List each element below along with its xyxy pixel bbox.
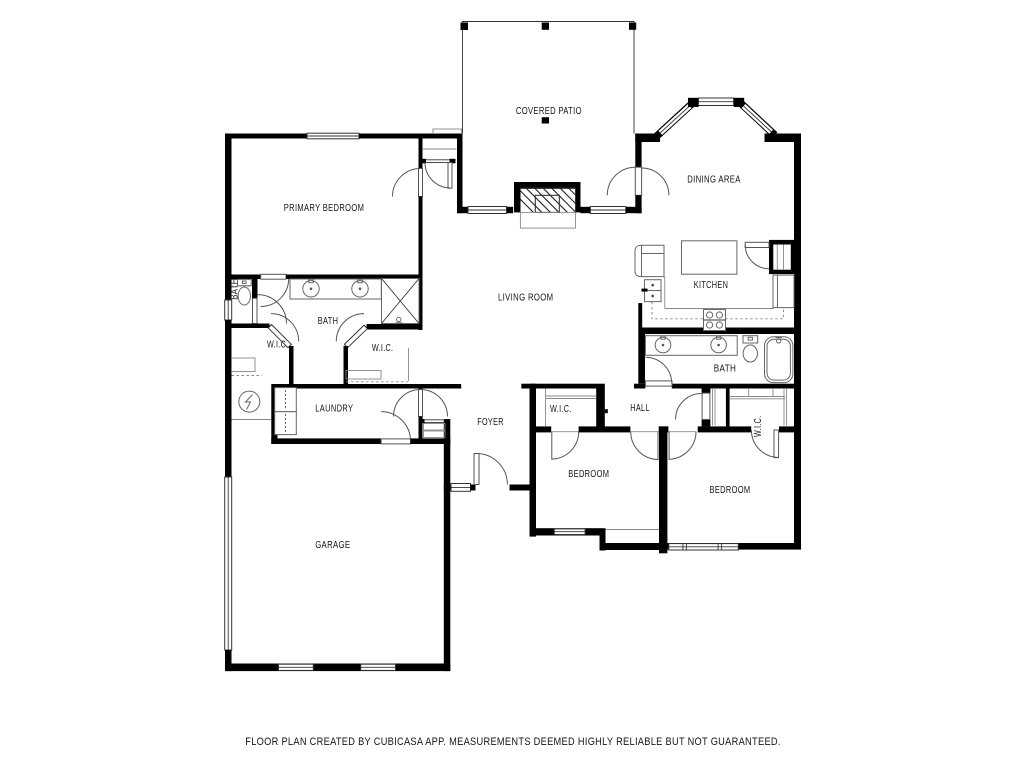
- svg-text:BEDROOM: BEDROOM: [710, 485, 751, 496]
- svg-text:W.I.C.: W.I.C.: [267, 340, 289, 351]
- svg-text:COVERED PATIO: COVERED PATIO: [516, 106, 582, 117]
- svg-text:HALL: HALL: [630, 403, 650, 414]
- svg-text:DINING AREA: DINING AREA: [687, 175, 741, 186]
- svg-text:W.I.C.: W.I.C.: [372, 343, 394, 354]
- svg-text:BATH: BATH: [714, 364, 737, 375]
- svg-text:KITCHEN: KITCHEN: [694, 280, 729, 291]
- svg-text:PRIMARY BEDROOM: PRIMARY BEDROOM: [284, 203, 365, 214]
- svg-text:W.I.C.: W.I.C.: [550, 404, 572, 415]
- svg-text:BATH: BATH: [318, 316, 339, 327]
- svg-text:FOYER: FOYER: [477, 417, 504, 428]
- svg-text:BEDROOM: BEDROOM: [568, 469, 609, 480]
- svg-text:GARAGE: GARAGE: [315, 540, 350, 551]
- svg-text:W.I.C.: W.I.C.: [753, 416, 764, 438]
- svg-text:LIVING ROOM: LIVING ROOM: [498, 293, 554, 304]
- svg-text:FLOOR PLAN CREATED BY CUBICASA: FLOOR PLAN CREATED BY CUBICASA APP. MEAS…: [245, 736, 781, 748]
- svg-text:LAUNDRY: LAUNDRY: [315, 403, 353, 414]
